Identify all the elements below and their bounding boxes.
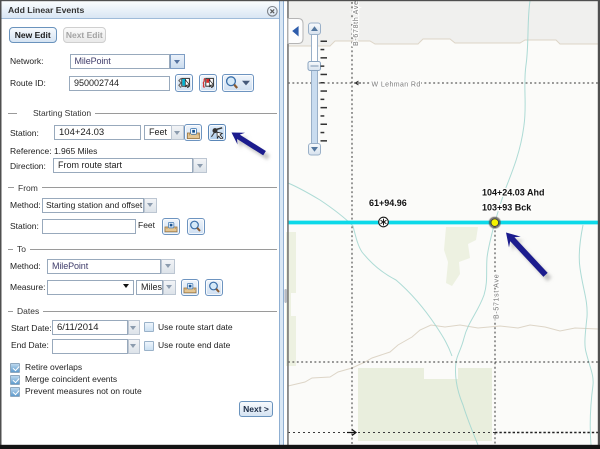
svg-text:B-678th Ave: B-678th Ave	[353, 0, 360, 46]
svg-text:B-571st Ave: B-571st Ave	[494, 274, 501, 319]
svg-text:W Lehman Rd: W Lehman Rd	[372, 81, 421, 88]
svg-text:104+24.03 Ahd: 104+24.03 Ahd	[482, 188, 544, 198]
svg-text:61+94.96: 61+94.96	[369, 198, 407, 208]
svg-text:103+93 Bck: 103+93 Bck	[482, 203, 532, 213]
